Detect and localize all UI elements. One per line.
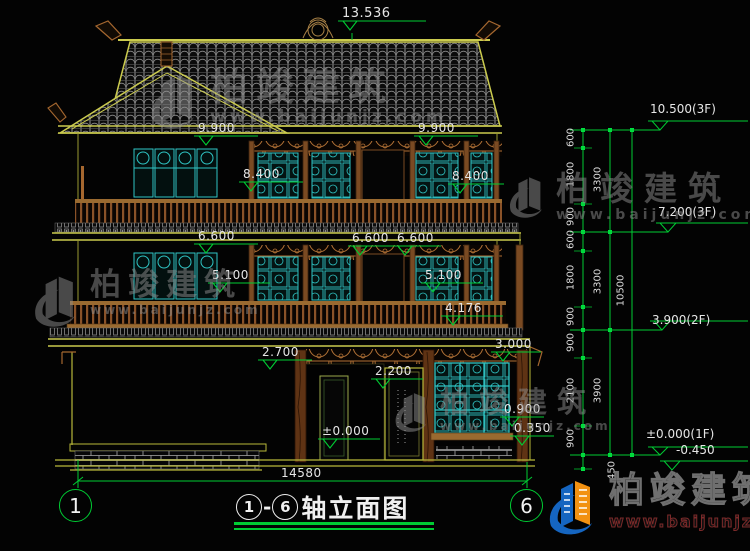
title-underline: [234, 522, 434, 525]
segment-dimension: 2100: [566, 368, 577, 414]
level-mark-label: 6.600: [397, 231, 434, 245]
ridge-ornament: [303, 18, 333, 40]
level-mark-label: 4.176: [445, 301, 482, 315]
segment-dimension: 900: [566, 416, 577, 462]
axis-number: 1: [69, 494, 82, 518]
right-level-label: 10.500(3F): [650, 102, 716, 116]
level-mark-label: 0.350: [514, 421, 551, 435]
segment-dimension: 1800: [566, 152, 577, 198]
right-level-label: 7.200(3F): [658, 205, 716, 219]
axis-bubble-1: 1: [59, 489, 92, 522]
level-mark-label: 5.100: [425, 268, 462, 282]
level-mark-label: 2.700: [262, 345, 299, 359]
right-level-label: 3.900(2F): [652, 313, 710, 327]
segment-dimension: 10500: [616, 268, 627, 314]
overall-width-dimension: 14580: [281, 466, 322, 480]
first-floor: [55, 346, 535, 470]
level-mark-label: 8.400: [243, 167, 280, 181]
level-mark-label: 2.200: [375, 364, 412, 378]
segment-dimension: 3300: [593, 259, 604, 305]
title-underline: [234, 528, 434, 530]
right-level-label: -0.450: [676, 443, 715, 457]
balcony-railing-2f: [67, 301, 508, 329]
right-level-label: ±0.000(1F): [646, 427, 714, 441]
level-mark-label: 6.600: [198, 229, 235, 243]
segment-dimension: 3300: [593, 157, 604, 203]
level-mark-label: 5.100: [212, 268, 249, 282]
level-mark-label: 3.000: [495, 337, 532, 351]
drawing-title: 1 - 6 轴立面图: [236, 489, 409, 525]
segment-dimension: 450: [607, 448, 618, 494]
level-mark-label: 6.600: [352, 231, 389, 245]
elevation-drawing: [0, 0, 750, 551]
level-mark-label: 0.900: [504, 402, 541, 416]
title-text: 轴立面图: [301, 489, 409, 525]
segment-dimension: 3900: [593, 368, 604, 414]
level-mark-label: ±0.000: [322, 424, 369, 438]
dimension-ticks: [574, 128, 641, 471]
level-mark-label: 9.900: [418, 121, 455, 135]
level-mark-label: 8.400: [452, 169, 489, 183]
title-axis-bubble-end: 6: [272, 494, 298, 520]
cad-elevation-canvas: { "meta": { "title_axis_start": "1", "ti…: [0, 0, 750, 551]
title-axis-bubble-start: 1: [236, 494, 262, 520]
segment-dimension: 900: [566, 320, 577, 366]
level-mark-label: 9.900: [198, 121, 235, 135]
third-floor: [72, 133, 504, 228]
axis-number: 6: [520, 494, 533, 518]
level-mark-label: 13.536: [342, 6, 391, 21]
axis-bubble-6: 6: [510, 489, 543, 522]
title-separator: -: [263, 495, 271, 519]
